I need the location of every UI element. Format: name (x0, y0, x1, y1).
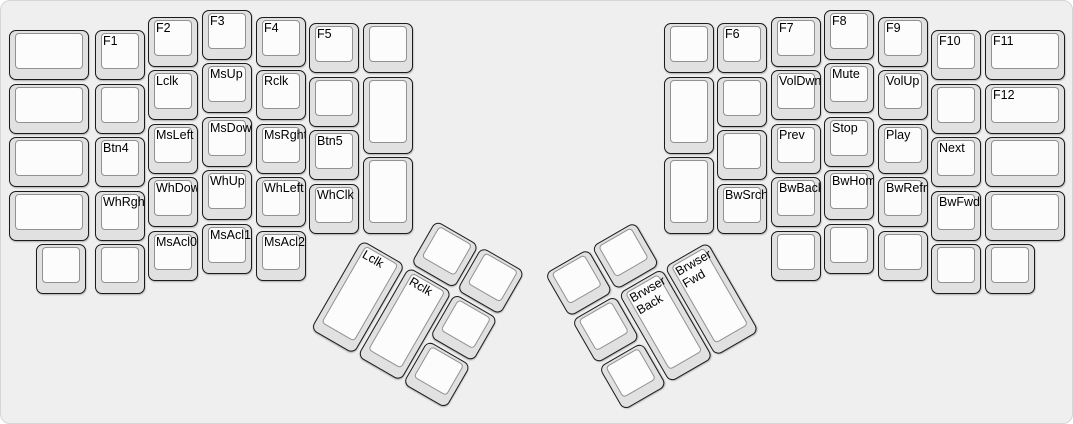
key-label: F12 (993, 89, 1015, 103)
key-msleft[interactable]: MsLeft (148, 124, 198, 174)
key-f11[interactable]: F11 (985, 30, 1065, 80)
key-btn4[interactable]: Btn4 (95, 137, 145, 187)
keycap-top (884, 234, 922, 270)
key-blank[interactable] (363, 157, 413, 234)
key-label: BwRefr (886, 182, 927, 196)
key-f7[interactable]: F7 (771, 17, 821, 67)
key-blank[interactable] (9, 84, 89, 134)
keycap-top (15, 87, 83, 123)
key-blank[interactable] (824, 224, 874, 274)
key-label: F8 (832, 15, 847, 29)
key-blank[interactable] (9, 30, 89, 80)
key-blank[interactable] (664, 77, 714, 154)
key-label: Stop (832, 122, 858, 136)
key-blank[interactable] (985, 244, 1035, 294)
key-f12[interactable]: F12 (985, 84, 1065, 134)
key-msacl2[interactable]: MsAcl2 (256, 231, 306, 281)
key-bwrefr[interactable]: BwRefr (878, 177, 928, 227)
keycap-top (369, 160, 407, 223)
keycap-top (413, 346, 464, 396)
key-blank[interactable] (95, 244, 145, 294)
keycap-top (670, 160, 708, 223)
key-bwsrch[interactable]: BwSrch (717, 184, 767, 234)
key-label: MsDown (210, 122, 252, 136)
keycap-top (777, 234, 815, 270)
key-label: F1 (103, 35, 118, 49)
key-blank[interactable] (36, 244, 86, 294)
key-label: F10 (939, 35, 961, 49)
keycap-top (723, 133, 761, 169)
keycap-top (670, 80, 708, 143)
key-msacl0[interactable]: MsAcl0 (148, 231, 198, 281)
key-whclk[interactable]: WhClk (309, 184, 359, 234)
key-blank[interactable] (878, 231, 928, 281)
key-whdown[interactable]: WhDown (148, 177, 198, 227)
key-whup[interactable]: WhUp (202, 170, 252, 220)
key-label: WhRght (103, 196, 145, 210)
keycap-top (315, 80, 353, 116)
keycap-top (15, 140, 83, 176)
key-label: MsAcl1 (210, 229, 251, 243)
key-blank[interactable] (9, 137, 89, 187)
keycap-top (551, 254, 602, 304)
key-label: F4 (264, 22, 279, 36)
key-blank[interactable] (664, 23, 714, 73)
key-f2[interactable]: F2 (148, 17, 198, 67)
key-lclk[interactable]: Lclk (148, 70, 198, 120)
key-label: F6 (725, 28, 740, 42)
key-blank[interactable] (771, 231, 821, 281)
keycap-top (991, 140, 1059, 176)
key-prev[interactable]: Prev (771, 124, 821, 174)
keycap-top (15, 33, 83, 69)
key-label: VolUp (886, 75, 919, 89)
key-label: WhClk (317, 189, 354, 203)
keycap-top (991, 194, 1059, 230)
keycap-top (937, 247, 975, 283)
key-voldwn[interactable]: VolDwn (771, 70, 821, 120)
keycap-top (605, 348, 656, 398)
keycap-top (101, 247, 139, 283)
key-label: VolDwn (779, 75, 821, 89)
key-label: Rclk (264, 75, 288, 89)
key-label: WhLeft (264, 182, 304, 196)
key-msup[interactable]: MsUp (202, 63, 252, 113)
key-label: BwFwd (939, 196, 980, 210)
keycap-top (42, 247, 80, 283)
keycap-top (369, 26, 407, 62)
keycap-top (991, 247, 1029, 283)
key-volup[interactable]: VolUp (878, 70, 928, 120)
key-label: BwSrch (725, 189, 767, 203)
key-label: BwBack (779, 182, 821, 196)
key-label: F7 (779, 22, 794, 36)
keycap-top (578, 301, 629, 351)
keycap-top (101, 87, 139, 123)
key-bwback[interactable]: BwBack (771, 177, 821, 227)
key-f6[interactable]: F6 (717, 23, 767, 73)
keyboard-layout-canvas: F1Btn4WhRghtF2LclkMsLeftWhDownMsAcl0F3Ms… (0, 0, 1073, 424)
key-blank[interactable] (664, 157, 714, 234)
key-whrght[interactable]: WhRght (95, 191, 145, 241)
key-label: Btn4 (103, 142, 129, 156)
key-blank[interactable] (95, 84, 145, 134)
keycap-top (440, 299, 491, 349)
key-bwfwd[interactable]: BwFwd (931, 191, 981, 241)
key-label: F2 (156, 22, 171, 36)
key-play[interactable]: Play (878, 124, 928, 174)
key-msrght[interactable]: MsRght (256, 124, 306, 174)
key-label: F3 (210, 15, 225, 29)
key-msdown[interactable]: MsDown (202, 117, 252, 167)
key-blank[interactable] (363, 23, 413, 73)
key-label: F5 (317, 28, 332, 42)
key-label: Btn5 (317, 135, 343, 149)
key-blank[interactable] (717, 77, 767, 127)
key-label: Lclk (156, 75, 178, 89)
keycap-top (937, 87, 975, 123)
key-f1[interactable]: F1 (95, 30, 145, 80)
key-whleft[interactable]: WhLeft (256, 177, 306, 227)
key-mute[interactable]: Mute (824, 63, 874, 113)
key-stop[interactable]: Stop (824, 117, 874, 167)
key-bwhome[interactable]: BwHome (824, 170, 874, 220)
key-f5[interactable]: F5 (309, 23, 359, 73)
key-f4[interactable]: F4 (256, 17, 306, 67)
key-f10[interactable]: F10 (931, 30, 981, 80)
key-blank[interactable] (9, 191, 89, 241)
keycap-top (723, 80, 761, 116)
key-f9[interactable]: F9 (878, 17, 928, 67)
keycap-top (15, 194, 83, 230)
keycap-top (830, 227, 868, 263)
key-f3[interactable]: F3 (202, 10, 252, 60)
key-label: WhDown (156, 182, 198, 196)
key-label: MsRght (264, 129, 306, 143)
key-label: Next (939, 142, 965, 156)
key-blank[interactable] (985, 137, 1065, 187)
key-blank[interactable] (985, 191, 1065, 241)
keycap-top (421, 226, 472, 276)
key-label: Mute (832, 68, 860, 82)
key-msacl1[interactable]: MsAcl1 (202, 224, 252, 274)
key-label: WhUp (210, 175, 245, 189)
key-label: MsAcl0 (156, 236, 197, 250)
key-label: Prev (779, 129, 805, 143)
key-label: Play (886, 129, 910, 143)
key-rclk[interactable]: Rclk (256, 70, 306, 120)
key-blank[interactable] (931, 84, 981, 134)
key-label: BwHome (832, 175, 874, 189)
keycap-top (467, 252, 518, 302)
key-blank[interactable] (931, 244, 981, 294)
keycap-top (670, 26, 708, 62)
key-label: MsUp (210, 68, 243, 82)
key-label: F11 (993, 35, 1014, 49)
key-label: MsAcl2 (264, 236, 305, 250)
keycap-top (369, 80, 407, 143)
key-f8[interactable]: F8 (824, 10, 874, 60)
key-label: F9 (886, 22, 901, 36)
key-btn5[interactable]: Btn5 (309, 130, 359, 180)
key-blank[interactable] (309, 77, 359, 127)
key-blank[interactable] (363, 77, 413, 154)
key-blank[interactable] (717, 130, 767, 180)
key-next[interactable]: Next (931, 137, 981, 187)
key-label: MsLeft (156, 129, 194, 143)
keycap-top (598, 227, 649, 277)
